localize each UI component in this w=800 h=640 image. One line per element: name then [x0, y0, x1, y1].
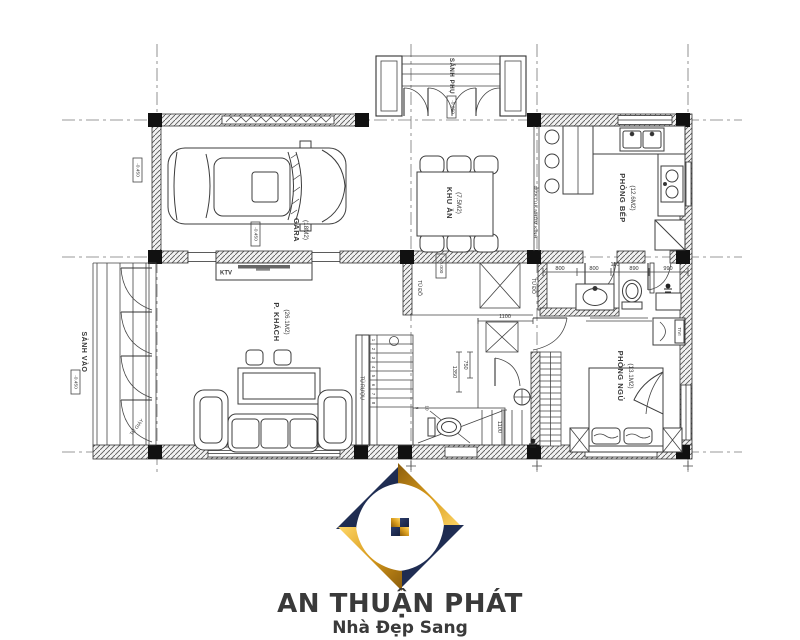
svg-text:1100: 1100: [496, 421, 502, 433]
staircase: TỦ RƯỢU 1 2 3 4 5 6 7 8 9 10: [356, 263, 537, 447]
garage-elevation: -0.450: [253, 227, 259, 241]
porch-elevation: -0.050: [450, 100, 456, 114]
svg-text:1350: 1350: [451, 366, 457, 378]
bedroom-area-size: (13.1M2): [627, 363, 634, 388]
tv-label: TIVI: [677, 327, 682, 335]
svg-text:1: 1: [371, 339, 376, 342]
svg-text:1100: 1100: [499, 314, 511, 320]
logo-title: AN THUẬN PHÁT: [277, 587, 523, 619]
garage-area: (18M2): [302, 220, 309, 240]
living-room: KTV P. KHÁCH (26.1M2): [194, 263, 352, 452]
entry-elevation: -0.450: [73, 375, 79, 389]
bedroom-label: PHÒNG NGỦ: [616, 351, 625, 402]
side-porch: SẢNH PHỤ -0.050: [376, 56, 526, 118]
wardrobe: [540, 352, 561, 446]
logo: AN THUẬN PHÁT Nhà Đẹp Sang: [277, 463, 523, 638]
sliding-door-label: CỬA LÙA NHÔM KÍNH: [533, 186, 539, 239]
logo-center-checker: [391, 518, 409, 536]
svg-text:4: 4: [371, 366, 376, 369]
stove: [661, 166, 683, 202]
toilet: [622, 280, 642, 309]
svg-text:110: 110: [611, 262, 620, 268]
living-area-size: (26.1M2): [283, 309, 290, 334]
hall-closet: TỦ ĐỒ: [416, 263, 520, 308]
entry-hall-label: SẢNH VÀO: [80, 332, 89, 373]
hall-closet-label: TỦ ĐỒ: [416, 280, 423, 296]
kitchen-area-size: (12.6M2): [629, 185, 636, 210]
floor-plan-image: SẢNH PHỤ -0.050 SẢNH VÀO -0.450 TỦ GIÀY: [0, 0, 800, 640]
svg-text:890: 890: [629, 266, 638, 272]
sink: [620, 128, 664, 151]
floor-plan-svg: SẢNH PHỤ -0.050 SẢNH VÀO -0.450 TỦ GIÀY: [0, 0, 800, 640]
garage-label: GARA: [292, 218, 301, 242]
driveway-elevation: -0.450: [135, 163, 141, 177]
kitchen: CỬA LÙA NHÔM KÍNH PHÒNG BẾP (12.6M2): [533, 126, 685, 251]
kitchen-label: PHÒNG BẾP: [618, 173, 628, 223]
svg-text:7: 7: [371, 393, 376, 396]
svg-text:800: 800: [589, 266, 598, 272]
stair-numbers: 1 2 3 4 5 6 7 8 9 10: [371, 339, 430, 411]
car: [168, 141, 346, 231]
side-porch-label: SẢNH PHỤ: [448, 58, 455, 94]
ktv-label: KTV: [220, 271, 232, 277]
svg-text:800: 800: [555, 266, 564, 272]
shower-room: [412, 315, 533, 408]
svg-text:990: 990: [663, 266, 672, 272]
garage: GARA (18M2) -0.450 -0.450: [133, 141, 346, 246]
svg-text:750: 750: [462, 360, 468, 369]
understair-wc: [413, 408, 537, 447]
wc-window: [445, 447, 477, 457]
bedroom: TIVI PHÒNG NGỦ (13.1M2): [533, 318, 685, 452]
svg-text:5: 5: [371, 375, 376, 378]
shower-corner: [656, 284, 681, 310]
wine-cabinet-label: TỦ RƯỢU: [359, 376, 366, 400]
svg-text:6: 6: [371, 384, 376, 387]
logo-diamond: [336, 463, 464, 591]
wc-toilet: [428, 418, 461, 436]
dining-label: KHU ĂN: [445, 187, 454, 219]
dining-area-size: (7.5M2): [455, 192, 462, 214]
svg-text:3: 3: [371, 357, 376, 360]
ground-elevation: ±0.000: [438, 259, 444, 274]
folding-entry-door: [121, 268, 152, 442]
bath-closet-label: TỦ ĐỒ: [530, 278, 537, 294]
entry-porch: SẢNH VÀO -0.450 TỦ GIÀY: [71, 263, 156, 445]
sofa-set: [194, 350, 352, 452]
fridge: [655, 220, 685, 250]
svg-text:2: 2: [371, 348, 376, 351]
logo-tagline: Nhà Đẹp Sang: [332, 618, 468, 638]
vanity-sink: [576, 284, 614, 310]
bed: [589, 368, 663, 452]
living-label: P. KHÁCH: [272, 302, 281, 341]
svg-text:8: 8: [371, 402, 376, 405]
